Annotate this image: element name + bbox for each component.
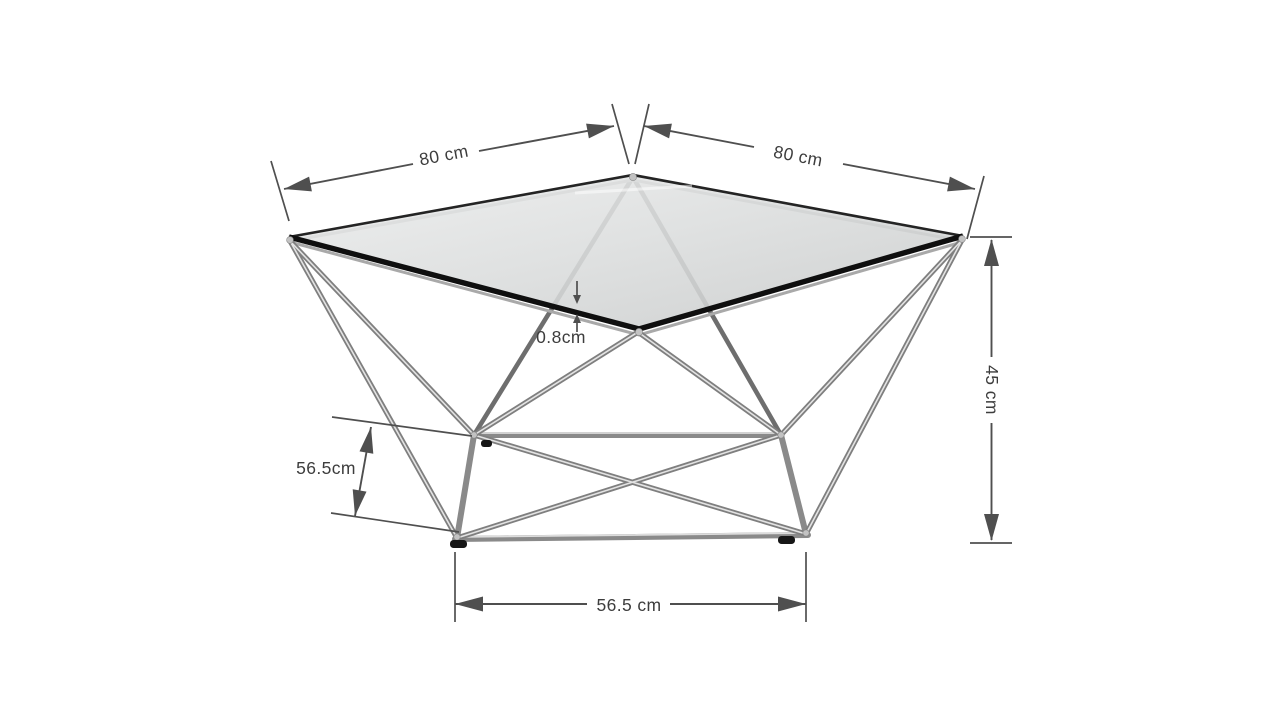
dim-label-base-depth: 56.5cm [296, 458, 356, 478]
dim-label-base-width: 56.5 cm [596, 595, 661, 615]
dimension-diagram-canvas: 80 cm 80 cm 0.8cm 45 cm 56.5cm [0, 0, 1280, 720]
dim-height: 45 cm [970, 237, 1012, 543]
dim-base-width: 56.5 cm [455, 552, 806, 622]
base-cross-braces [457, 435, 806, 538]
dim-label-top-left: 80 cm [418, 141, 471, 170]
table-feet [450, 440, 795, 548]
coffee-table-dimension-drawing: 80 cm 80 cm 0.8cm 45 cm 56.5cm [0, 0, 1280, 720]
dim-label-top-right: 80 cm [772, 142, 825, 171]
table-illustration [287, 173, 966, 548]
dim-label-height: 45 cm [982, 365, 1002, 415]
glass-top [289, 175, 963, 329]
dim-label-glass-thickness: 0.8cm [536, 327, 586, 347]
